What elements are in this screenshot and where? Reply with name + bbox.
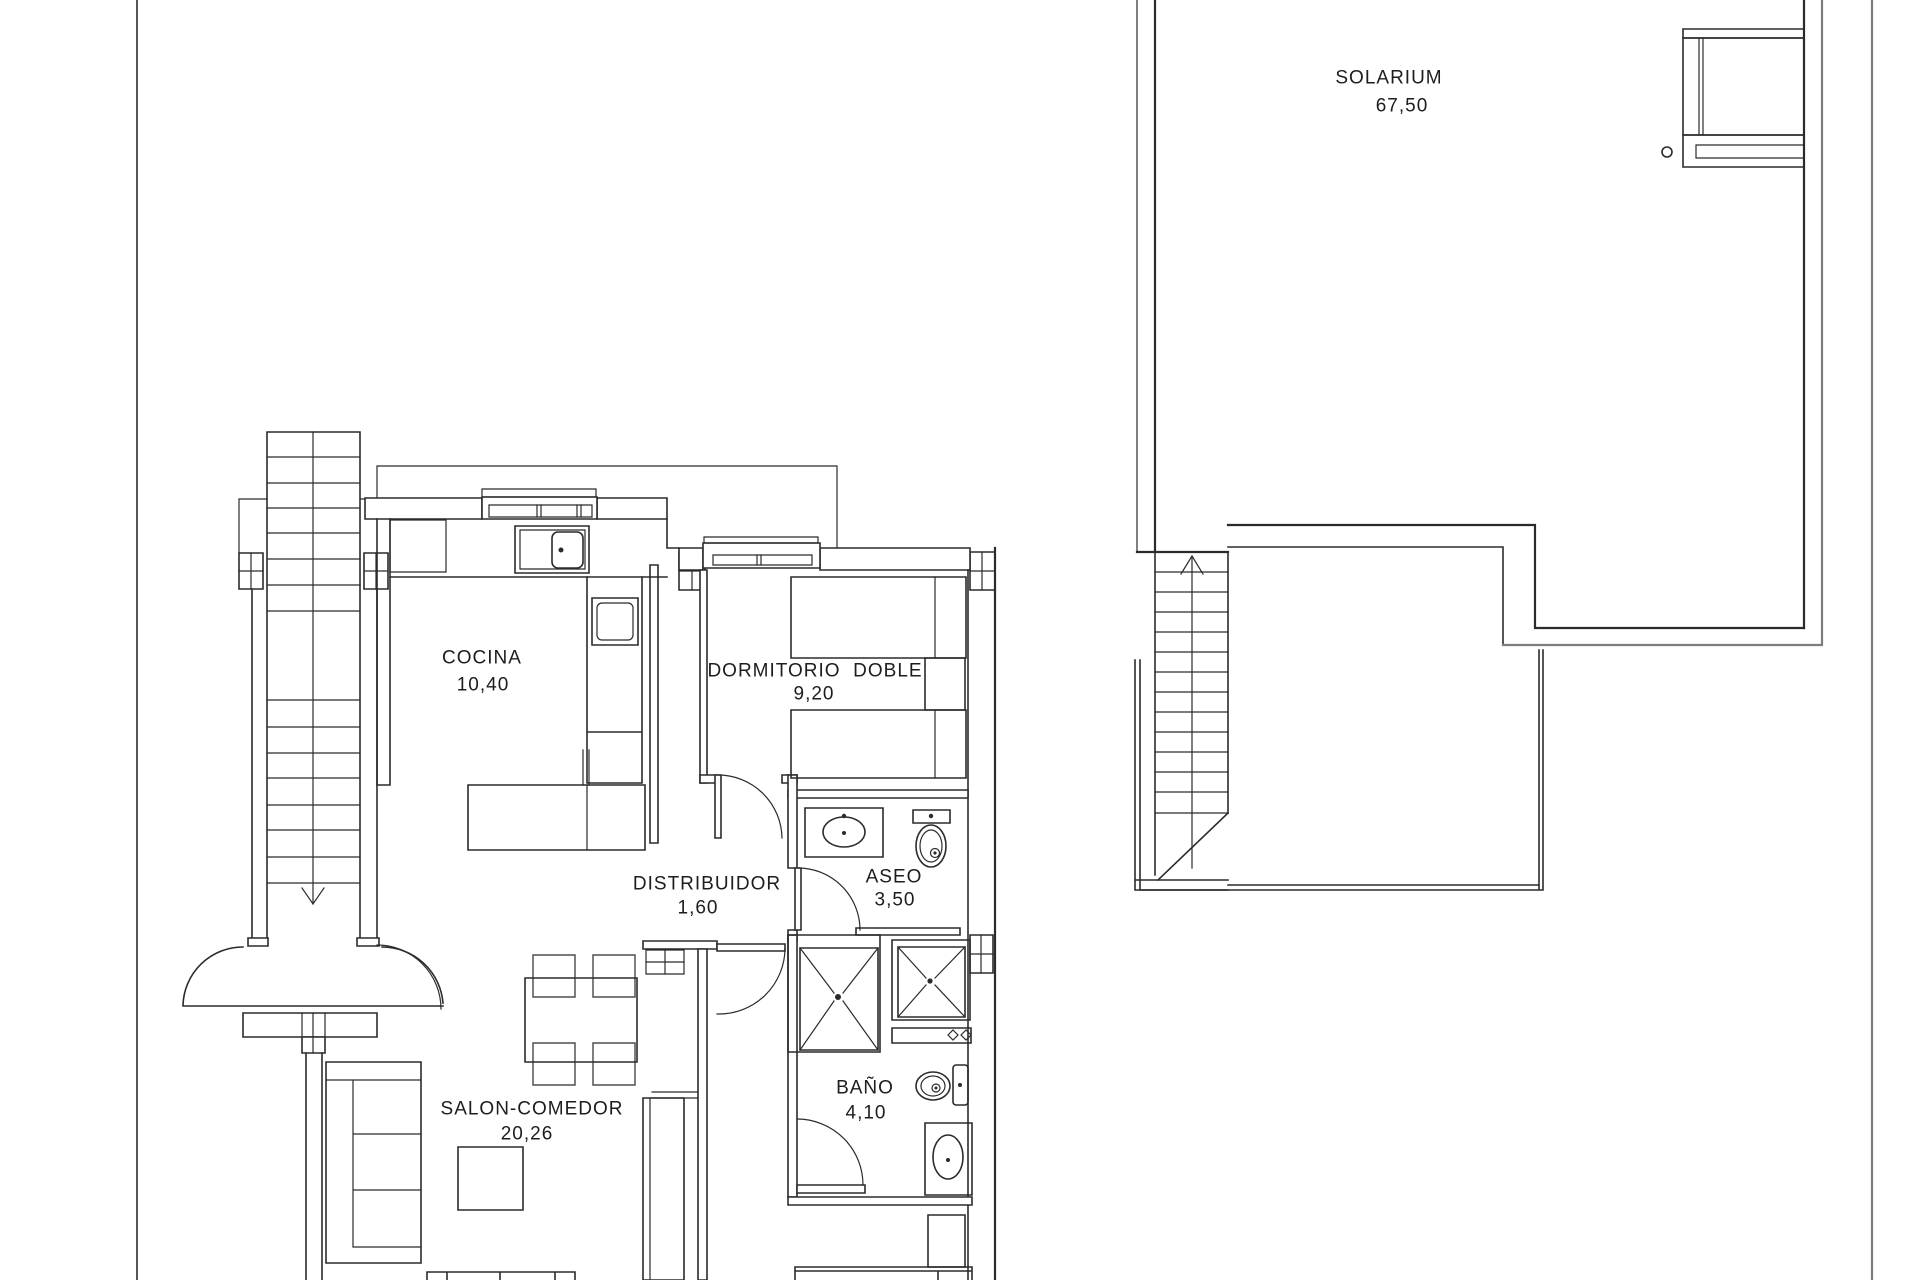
coffee-table — [458, 1147, 523, 1210]
room-area-solarium: 67,50 — [1376, 97, 1429, 116]
aseo-door — [795, 868, 860, 930]
solarium-staircase — [1155, 552, 1228, 880]
kitchen-peninsula — [468, 750, 645, 850]
floor-plan-page: COCINA 10,40 DORMITORIO DOBLE 9,20 DISTR… — [0, 0, 1920, 1280]
kitchen-furniture — [390, 520, 667, 850]
entry-door — [377, 945, 441, 1009]
pedestal-sink-icon — [925, 1123, 972, 1195]
washbasin-icon — [805, 808, 883, 857]
room-area-dormitorio: 9,20 — [794, 685, 835, 704]
handle-knob — [1662, 147, 1672, 157]
nightstand — [925, 658, 965, 710]
bed — [791, 710, 966, 778]
bedroom-window — [703, 537, 820, 568]
room-label-dormitorio: DORMITORIO DOBLE — [707, 662, 922, 681]
chair — [593, 1043, 635, 1085]
aseo-fixtures — [805, 808, 950, 867]
room-label-cocina: COCINA — [442, 649, 522, 668]
rooftop-window-detail — [1662, 29, 1804, 167]
kitchen-window — [482, 489, 597, 519]
nightstand — [928, 1215, 965, 1267]
cooktop-icon — [592, 598, 638, 645]
chair — [593, 955, 635, 997]
chair — [533, 955, 575, 997]
shower-icon — [892, 940, 970, 1020]
room-area-aseo: 3,50 — [875, 891, 916, 910]
sofa — [326, 1062, 421, 1263]
stair-break-line — [1158, 813, 1228, 880]
porch-arc-right — [382, 947, 443, 1003]
pillar — [970, 935, 993, 973]
dining-table-set — [525, 950, 684, 1085]
bed — [791, 577, 966, 658]
floor-plan-drawing — [0, 0, 1920, 1280]
toilet-icon — [916, 1065, 968, 1105]
room-area-cocina: 10,40 — [457, 676, 510, 695]
sideboard — [427, 1272, 575, 1280]
porch-arc-left — [183, 947, 243, 1005]
counter-column — [587, 577, 642, 783]
pillar — [364, 553, 388, 589]
shelf-with-taps — [892, 1028, 971, 1043]
room-area-distribuidor: 1,60 — [678, 899, 719, 918]
room-label-bano: BAÑO — [836, 1079, 894, 1098]
hall-upper-door — [717, 944, 785, 1014]
tv-cabinet — [643, 1092, 698, 1280]
apartment-staircase — [248, 432, 379, 946]
room-label-distribuidor: DISTRIBUIDOR — [633, 875, 781, 894]
bed — [795, 1267, 972, 1280]
room-label-solarium: SOLARIUM — [1335, 69, 1442, 88]
hall-lower-door — [797, 1119, 865, 1193]
pillar — [970, 552, 995, 590]
site-boundary-lines — [137, 0, 1872, 1280]
chair — [533, 1043, 575, 1085]
dining-table — [525, 978, 637, 1062]
pillar — [239, 553, 263, 589]
kitchen-sink-icon — [515, 526, 589, 573]
room-label-salon: SALON-COMEDOR — [441, 1100, 624, 1119]
solarium-plan — [1135, 0, 1822, 890]
chair — [646, 950, 684, 974]
room-area-salon: 20,26 — [501, 1125, 554, 1144]
shower-icon — [788, 935, 880, 1052]
counter-cabinet — [390, 520, 446, 572]
entry-porch — [183, 947, 443, 1280]
room-area-bano: 4,10 — [846, 1104, 887, 1123]
room-label-aseo: ASEO — [866, 868, 923, 887]
bedroom-door — [715, 775, 782, 838]
entry-walkway — [306, 1053, 322, 1280]
toilet-icon — [913, 810, 950, 867]
